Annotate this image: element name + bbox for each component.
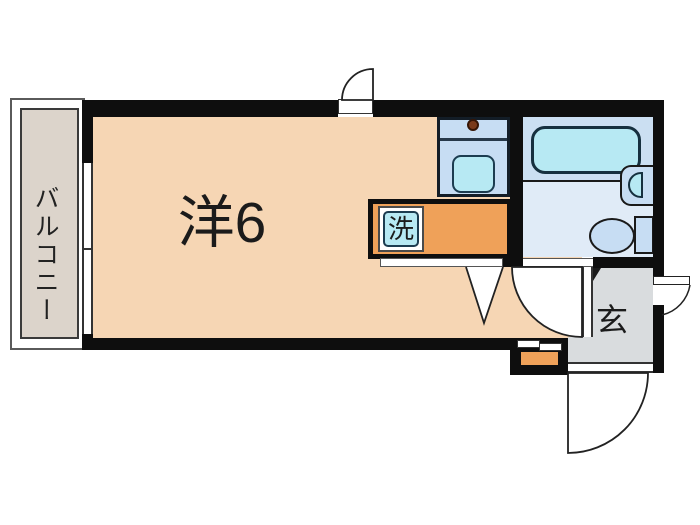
- hall-doorway-strip: [582, 267, 593, 337]
- side-door-leaf: [653, 276, 690, 285]
- toilet-tank: [634, 216, 654, 254]
- entrance-floor-lower: [568, 337, 653, 362]
- entrance-door-sill: [568, 362, 653, 373]
- wall-top-right: [373, 100, 664, 117]
- toilet-bowl: [589, 218, 635, 254]
- wall-kitchen-bath-divider: [510, 117, 523, 267]
- kitchen-passage-opening: [380, 258, 503, 267]
- wall-left-upper: [82, 100, 93, 163]
- top-door-sill: [338, 99, 373, 114]
- kitchen-sink: [452, 155, 495, 193]
- sliding-door-panel-right: [539, 343, 562, 351]
- wall-right-upper: [653, 100, 664, 277]
- sliding-door-panel-left: [517, 340, 540, 348]
- side-door-arc: [662, 285, 690, 315]
- balcony-label: バルコニー: [33, 160, 63, 350]
- wall-bottom: [82, 338, 510, 350]
- shoe-cabinet: [521, 352, 558, 365]
- balcony-window-meeting-rail: [82, 248, 93, 250]
- entrance-door-arc: [568, 373, 648, 453]
- kitchen-counter-divider: [440, 138, 507, 141]
- main-room-label: 洋6: [142, 192, 302, 254]
- stove-burner-icon: [467, 119, 479, 131]
- washer-label: 洗: [384, 215, 418, 243]
- top-door-arc: [342, 69, 373, 100]
- floor-plan: バルコニー 洋6 洗 玄: [0, 0, 700, 525]
- bathroom-door-opening: [523, 258, 593, 267]
- entrance-label: 玄: [594, 302, 630, 338]
- wall-right-lower: [653, 305, 664, 373]
- wall-top-left: [82, 100, 338, 117]
